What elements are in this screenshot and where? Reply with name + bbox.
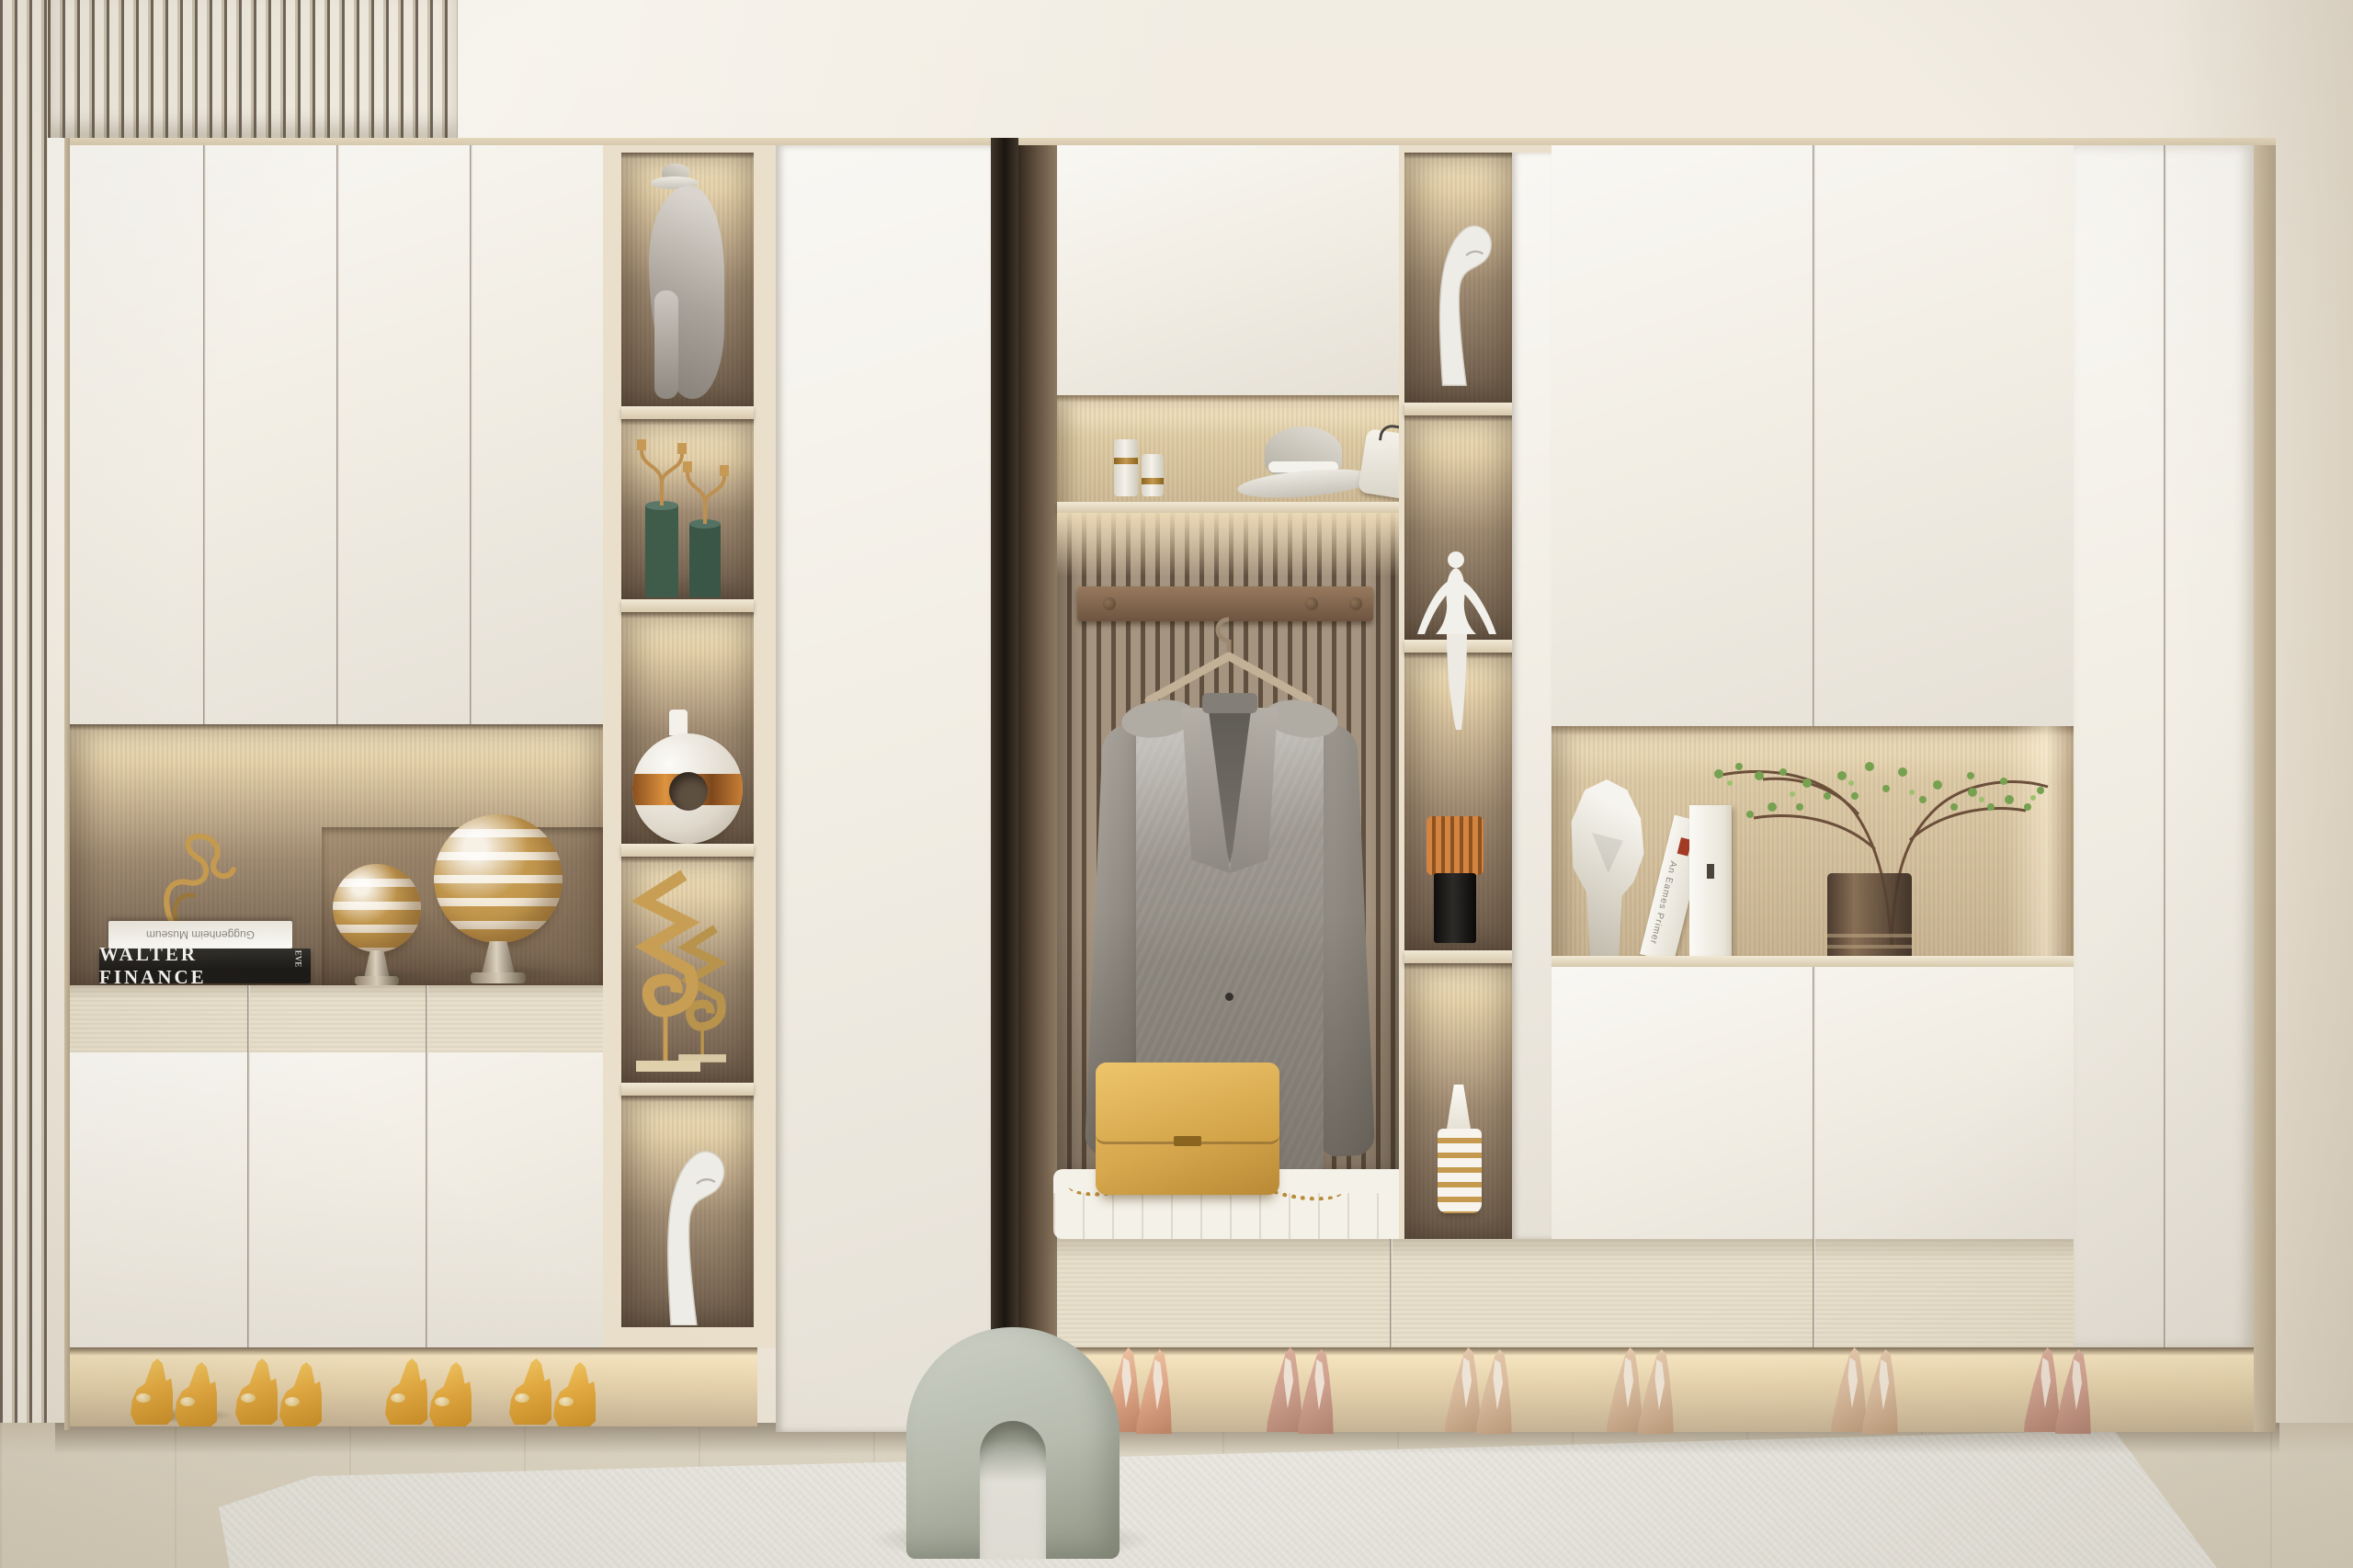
handbag-clasp (1174, 1136, 1201, 1146)
right-section-drawer-row (1552, 1239, 2074, 1347)
green-marble-candelabras (631, 428, 745, 599)
shoe-bow (285, 1397, 300, 1406)
shoe-bow (241, 1393, 256, 1403)
gold-striped-orb-small (333, 864, 421, 952)
door-seam (470, 145, 472, 724)
copper-candle-top (1427, 816, 1483, 875)
vase-rib (1827, 945, 1912, 949)
black-book: WALTER FINANCE EVE (99, 949, 311, 983)
door-seam (426, 1052, 428, 1347)
blazer-lapel-right (1230, 708, 1278, 873)
door-seam (336, 145, 339, 724)
heels-pair-nude (1445, 1346, 1537, 1434)
column-shelf (621, 406, 754, 419)
left-unit-tall-door (776, 145, 991, 1432)
display-niche: Guggenheim Museum WALTER FINANCE EVE (70, 724, 603, 985)
coat-peg (1103, 597, 1116, 610)
drawer-seam (1813, 1239, 1815, 1347)
column-shelf (621, 1083, 754, 1096)
column-shelf (1404, 950, 1512, 963)
column-shelf (621, 599, 754, 612)
door-seam (247, 1052, 250, 1347)
slat-wall-panel-top (48, 0, 458, 138)
blazer-button (1225, 993, 1233, 1001)
striped-vase-neck (1447, 1085, 1471, 1129)
decor-column-middle (1399, 145, 1552, 1239)
wardrobe-right-unit: An Eames Primer (1018, 138, 2276, 1432)
compartment-striped-vase (1404, 963, 1512, 1239)
shoe-bow (391, 1393, 405, 1403)
yellow-flat-shoe (553, 1362, 596, 1426)
face-facet-shadow (1592, 833, 1623, 873)
shoe-niche-right (1057, 1347, 2254, 1432)
black-book-edge-text: EVE (294, 950, 303, 968)
heel-shoe (1476, 1349, 1517, 1434)
right-section-lower-doors (1552, 967, 2074, 1239)
jar-gold-ring (1142, 478, 1164, 484)
perfume-jar (1114, 439, 1138, 496)
unit-divider-gap (991, 138, 1018, 1432)
arch-stool (906, 1327, 1120, 1559)
left-unit-drawer-row (70, 985, 603, 1052)
left-unit-top-edge (64, 138, 991, 145)
heels-pair-nude (1607, 1346, 1699, 1434)
door-seam (1813, 145, 1815, 726)
column-side-panel (1512, 153, 1552, 1239)
blazer-shoulder (1263, 696, 1341, 743)
handbag-flap (1096, 1062, 1279, 1144)
compartment-candelabra (621, 419, 754, 599)
blazer-right-sleeve (1300, 723, 1375, 1157)
yellow-handbag (1096, 1062, 1279, 1195)
column-shelf (621, 844, 754, 857)
arch-stool-cutout (980, 1421, 1046, 1559)
door-seam (203, 145, 206, 724)
heel-shoe (1862, 1349, 1903, 1434)
niche-bottom-shelf (1552, 956, 2074, 967)
donut-vase-hole (669, 772, 708, 811)
coat-peg (1349, 597, 1362, 610)
vase-rib (1827, 934, 1912, 937)
wooden-hanger (1142, 616, 1316, 708)
heel-shoe (2055, 1349, 2096, 1434)
right-section-top-doors (1552, 145, 2074, 726)
drawer-seam (1390, 1239, 1392, 1347)
compartment-face-sculpture (1404, 153, 1512, 403)
drawer-seam (247, 985, 250, 1052)
plant-niche: An Eames Primer (1552, 726, 2074, 967)
heel-shoe (1298, 1349, 1338, 1434)
gorilla-arm (654, 290, 678, 399)
coat-peg (1305, 597, 1318, 610)
compartment-donut-vase (621, 612, 754, 844)
door-seam (1813, 967, 1815, 1239)
hat-shelf-board (1057, 502, 1399, 513)
decor-column-left (603, 145, 776, 1347)
yellow-flats-pair (509, 1353, 605, 1426)
blazer-vneck (1193, 708, 1267, 864)
coat-rail (1077, 586, 1373, 621)
yellow-flat-shoe (235, 1358, 278, 1425)
blazer-collar (1202, 693, 1257, 713)
shoe-bow (515, 1393, 529, 1403)
compartment-zigzag (621, 857, 754, 1083)
donut-vase-neck (669, 710, 688, 735)
yellow-flats-pair (235, 1353, 331, 1426)
yellow-flat-shoe (385, 1358, 427, 1425)
shoe-bow (136, 1393, 151, 1403)
bent-head-sculpture (643, 1131, 732, 1325)
yellow-flats-pair (385, 1353, 481, 1426)
shoe-bow (180, 1397, 195, 1406)
shoe-bow (559, 1397, 574, 1406)
black-candle-base (1434, 873, 1476, 943)
compartment-gorilla (621, 153, 754, 406)
yellow-flat-shoe (429, 1362, 472, 1426)
jar-gold-ring (1114, 458, 1138, 464)
nook-top-door (1057, 145, 1399, 395)
left-unit-top-doors (70, 145, 603, 724)
heel-shoe (1638, 1349, 1678, 1434)
seated-figurine (1415, 550, 1504, 733)
left-unit-lower-doors (70, 1052, 603, 1347)
blazer-shoulder (1120, 696, 1198, 743)
shoe-niche-left (70, 1347, 757, 1426)
orb-base (471, 972, 526, 983)
heels-pair-nude (1831, 1346, 1923, 1434)
bent-head-sculpture (1417, 204, 1498, 388)
slat-wall-strip-left (0, 0, 48, 1426)
right-unit-tall-doors (2074, 145, 2254, 1349)
blazer-lapel-left (1182, 708, 1230, 873)
black-book-spine-text: WALTER FINANCE (99, 943, 311, 989)
yellow-flat-shoe (279, 1362, 322, 1426)
gold-striped-orb-large (434, 814, 563, 943)
heels-pair-rose (2024, 1346, 2116, 1434)
compartment-bent-sculpture (621, 1096, 754, 1327)
door-seam (2164, 145, 2166, 1349)
yellow-flat-shoe (175, 1362, 217, 1426)
donut-vase (632, 733, 743, 844)
drawer-seam (426, 985, 428, 1052)
interior-render-scene: Guggenheim Museum WALTER FINANCE EVE (0, 0, 2353, 1568)
heel-shoe (1136, 1349, 1176, 1434)
felt-hat-brim (1236, 464, 1378, 502)
gold-zigzag-sculptures (629, 866, 746, 1083)
column-shelf (1404, 403, 1512, 415)
yellow-flats-pair (131, 1353, 226, 1426)
yellow-flat-shoe (131, 1358, 173, 1425)
gold-wire-sculpture (143, 829, 254, 926)
wardrobe-left-unit: Guggenheim Museum WALTER FINANCE EVE (64, 138, 991, 1432)
yellow-flat-shoe (509, 1358, 551, 1425)
right-unit-edge (2254, 145, 2276, 1432)
white-book-spine-text: Guggenheim Museum (146, 928, 255, 941)
hat-shelf-niche (1057, 395, 1399, 513)
right-unit-top-edge (1018, 138, 2276, 145)
orb-base (355, 976, 399, 985)
nook-drawer-row (1057, 1239, 1552, 1347)
smoked-glass-vase (1827, 873, 1912, 961)
low-poly-face-sculpture (1566, 779, 1651, 956)
perfume-jar (1142, 454, 1164, 496)
right-unit-side-panel (1018, 145, 1057, 1432)
gold-striped-vase (1438, 1129, 1482, 1213)
heels-pair-rose (1267, 1346, 1358, 1434)
shoe-bow (435, 1397, 449, 1406)
